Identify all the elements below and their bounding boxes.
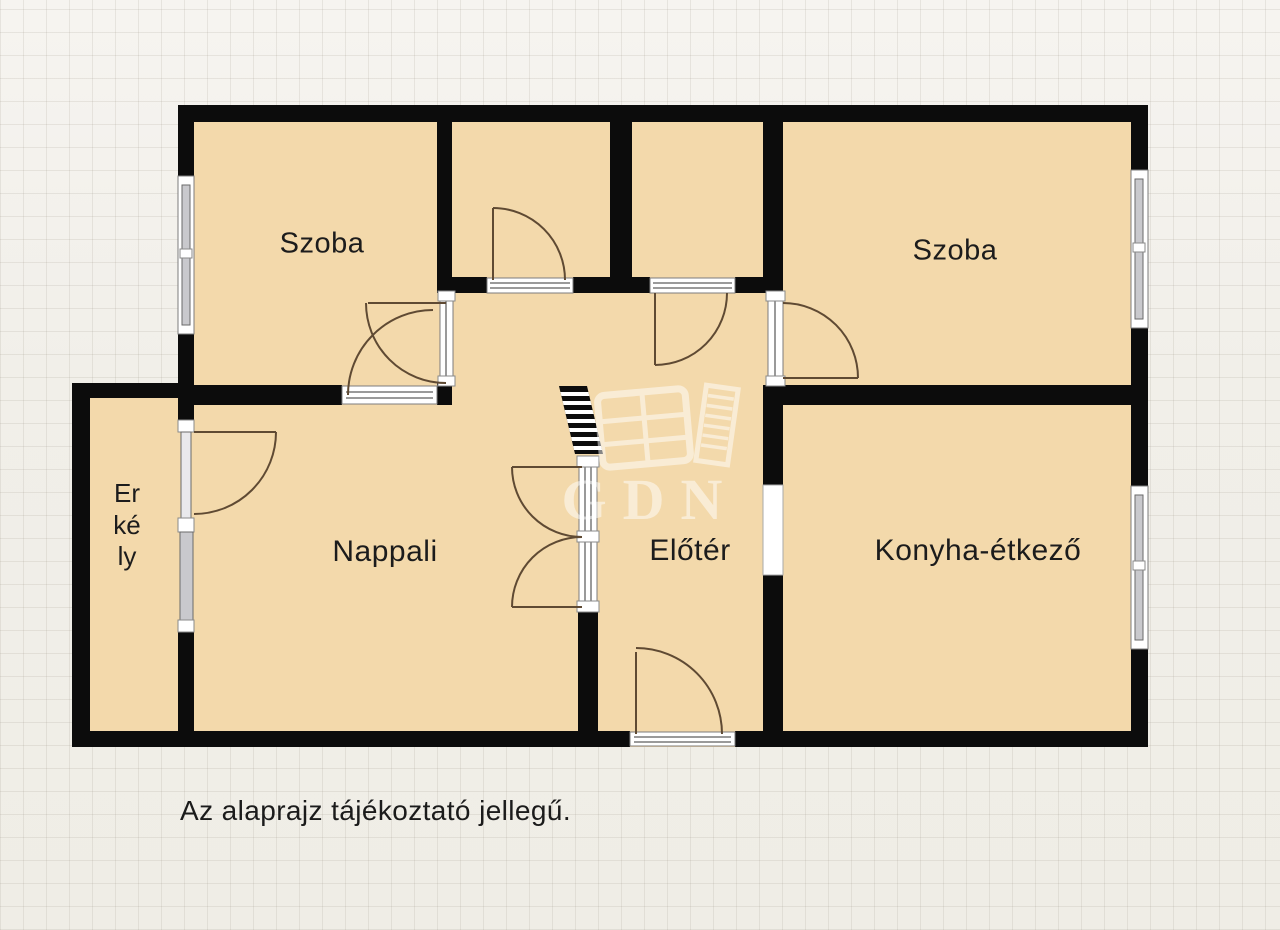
door-frame-szoba-left-nappali <box>342 386 437 404</box>
floor-plan: GDN Szoba Szoba Nappali Előtér Konyha-ét… <box>0 0 1280 930</box>
watermark-text: GDN <box>562 467 739 532</box>
door-frame-small-b <box>650 278 735 293</box>
room-small-a-floor <box>437 105 632 295</box>
door-frame-szoba-right <box>766 291 785 386</box>
entrance-door-threshold <box>630 732 735 746</box>
floor-plan-drawing: GDN <box>0 0 1280 930</box>
door-frame-szoba-left-hall <box>438 291 455 386</box>
room-small-b-floor <box>610 105 783 295</box>
window-szoba-left <box>178 176 194 334</box>
room-label-erkely: Erkély <box>112 478 142 573</box>
door-frame-small-a <box>487 278 573 293</box>
room-label-szoba-left: Szoba <box>280 228 365 261</box>
window-szoba-right <box>1131 170 1148 328</box>
plan-caption: Az alaprajz tájékoztató jellegű. <box>180 795 571 827</box>
room-label-konyha: Konyha-étkező <box>875 534 1082 568</box>
window-konyha <box>1131 486 1148 649</box>
room-label-nappali: Nappali <box>332 535 437 569</box>
room-label-szoba-right: Szoba <box>913 235 998 268</box>
opening-eloter-konyha <box>763 485 783 575</box>
room-label-eloter: Előtér <box>649 534 730 568</box>
